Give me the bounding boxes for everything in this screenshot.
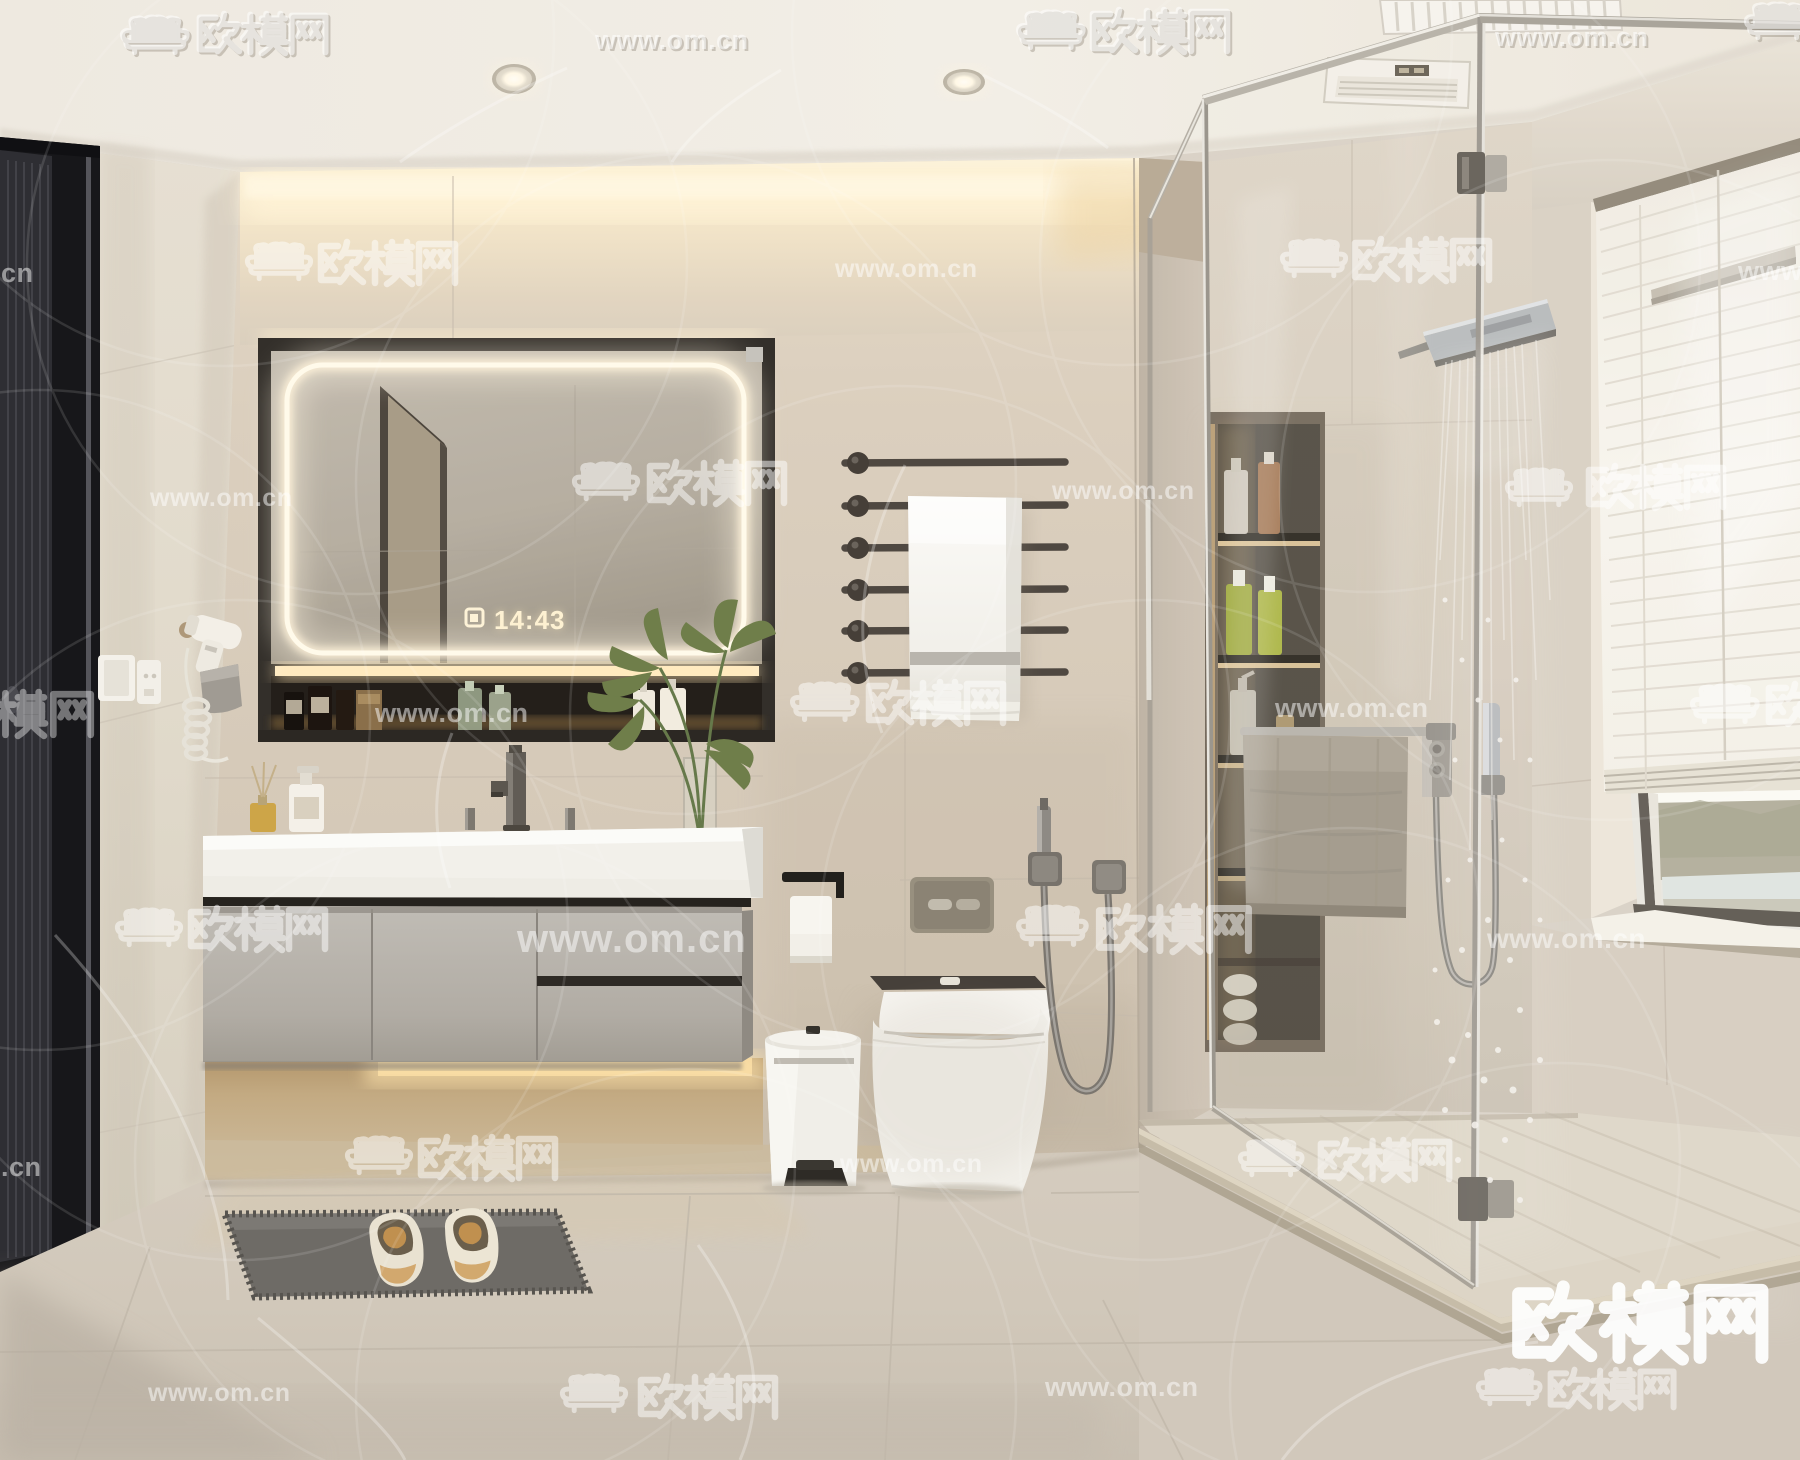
svg-text:www.om.cn: www.om.cn: [0, 258, 34, 288]
svg-text:www.om.cn: www.om.cn: [1274, 693, 1429, 723]
svg-text:www.om.cn: www.om.cn: [1051, 477, 1194, 505]
svg-text:www.om.cn: www.om.cn: [834, 255, 977, 283]
svg-text:www.om.cn: www.om.cn: [594, 25, 749, 55]
svg-text:14:43: 14:43: [494, 605, 566, 635]
svg-text:www.om.cn: www.om.cn: [149, 484, 292, 512]
svg-text:www.om.cn: www.om.cn: [839, 1150, 982, 1178]
svg-text:www.om.cn: www.om.cn: [1044, 1372, 1199, 1402]
svg-text:www.om.cn: www.om.cn: [374, 698, 529, 728]
svg-text:www.om.cn: www.om.cn: [516, 917, 747, 961]
svg-text:www.om.cn: www.om.cn: [147, 1379, 290, 1407]
svg-text:www.: www.: [1737, 256, 1800, 286]
svg-text:www.om.cn: www.om.cn: [1494, 22, 1649, 52]
svg-text:www.om.cn: www.om.cn: [0, 1152, 42, 1182]
svg-text:www.om.cn: www.om.cn: [1486, 923, 1646, 954]
